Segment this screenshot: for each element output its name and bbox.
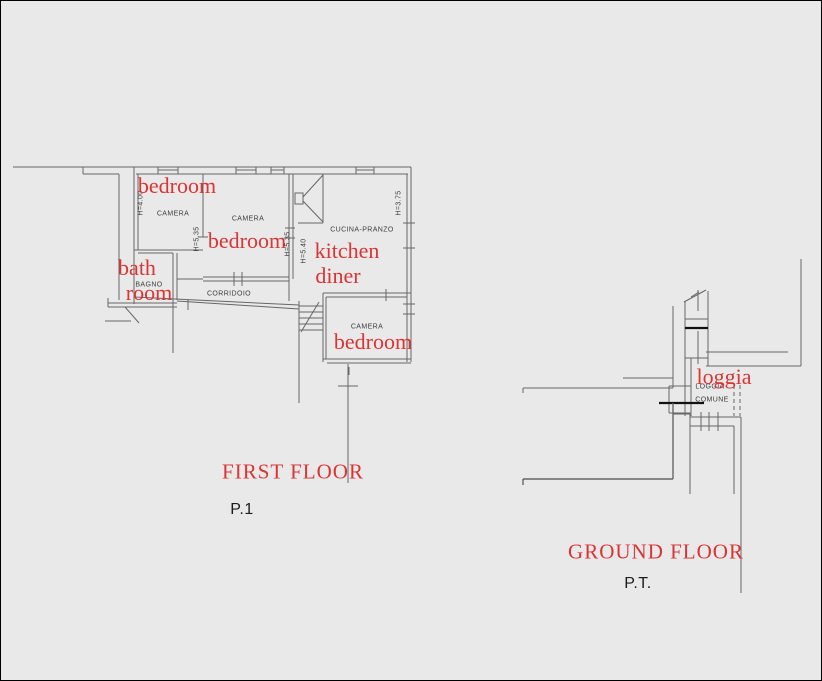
ground-floor-stairs [684, 290, 708, 366]
annotation-bath: bath [118, 257, 156, 279]
ground-floor-lower-room [673, 412, 741, 593]
annotation-bedroom-1: bedroom [138, 175, 216, 197]
first-floor-chimney [295, 174, 323, 223]
annotation-kitchen: kitchen [315, 240, 380, 262]
annotation-bedroom-3: bedroom [334, 331, 412, 353]
first-floor-stairs [299, 301, 323, 334]
floor-plan-sheet: CAMERA CAMERA CUCINA-PRANZO CAMERA BAGNO… [0, 0, 822, 681]
annotation-diner: diner [315, 265, 360, 287]
height-label-h535-a: H=5.35 [194, 226, 201, 251]
room-label-camera-1: CAMERA [157, 211, 189, 218]
ground-floor-title: GROUND FLOOR [568, 540, 744, 565]
ground-floor-code: P.T. [624, 575, 652, 593]
first-floor-code: P.1 [230, 501, 253, 519]
ground-floor-left-walls [523, 306, 673, 485]
room-label-cucina-pranzo: CUCINA-PRANZO [330, 227, 394, 234]
height-label-h375: H=3.75 [396, 190, 403, 215]
first-floor-title: FIRST FLOOR [222, 460, 364, 485]
ground-floor-loggia-walls [659, 259, 801, 416]
annotation-bedroom-2: bedroom [208, 230, 286, 252]
annotation-loggia: loggia [697, 366, 752, 388]
room-label-camera-2: CAMERA [232, 216, 264, 223]
room-label-comune: COMUNE [695, 397, 729, 404]
height-label-h540: H=5.40 [301, 238, 308, 263]
annotation-room: room [126, 282, 172, 304]
room-label-corridoio: CORRIDOIO [207, 291, 251, 298]
